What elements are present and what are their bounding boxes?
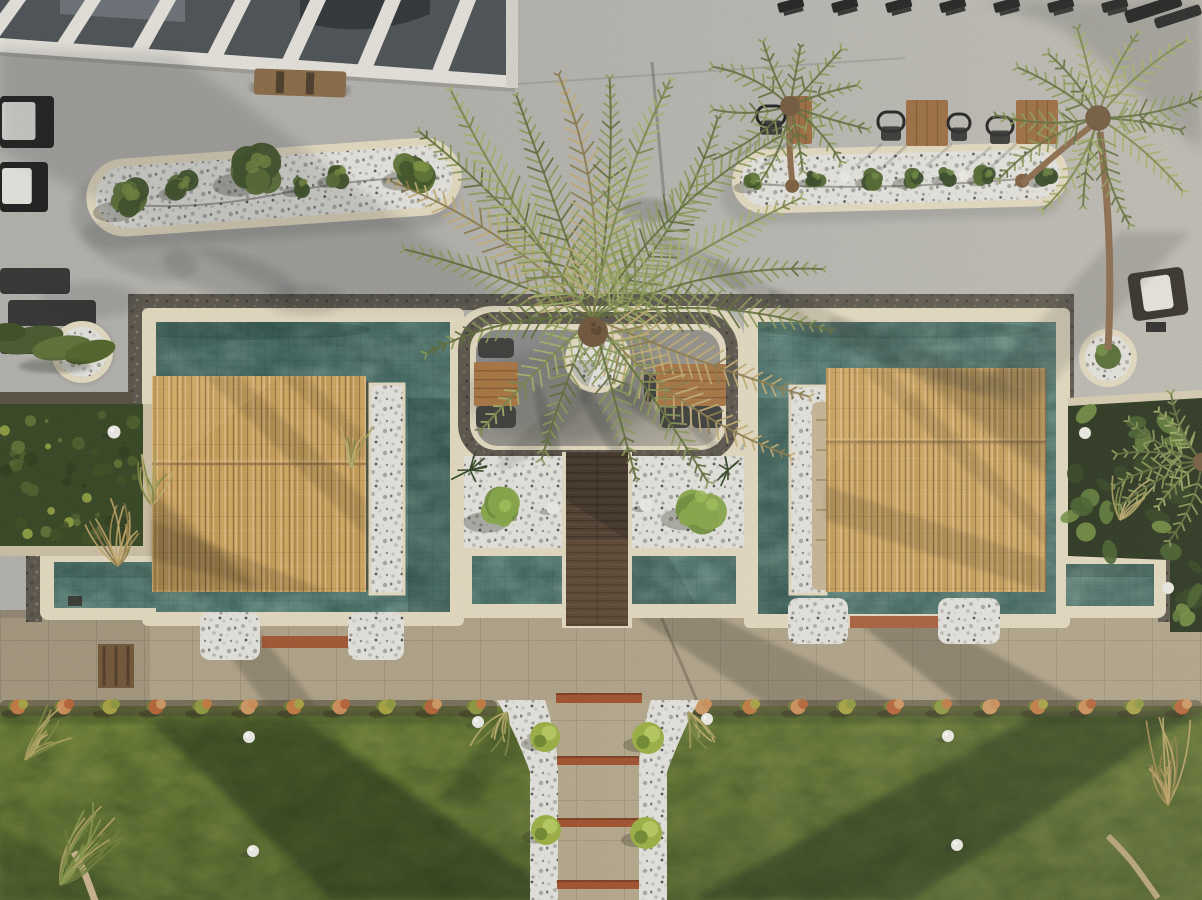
scene-svg [0, 0, 1202, 900]
golden-hour-glow [0, 0, 1202, 900]
aerial-photo: Aerial top-down drone view at golden hou… [0, 0, 1202, 900]
